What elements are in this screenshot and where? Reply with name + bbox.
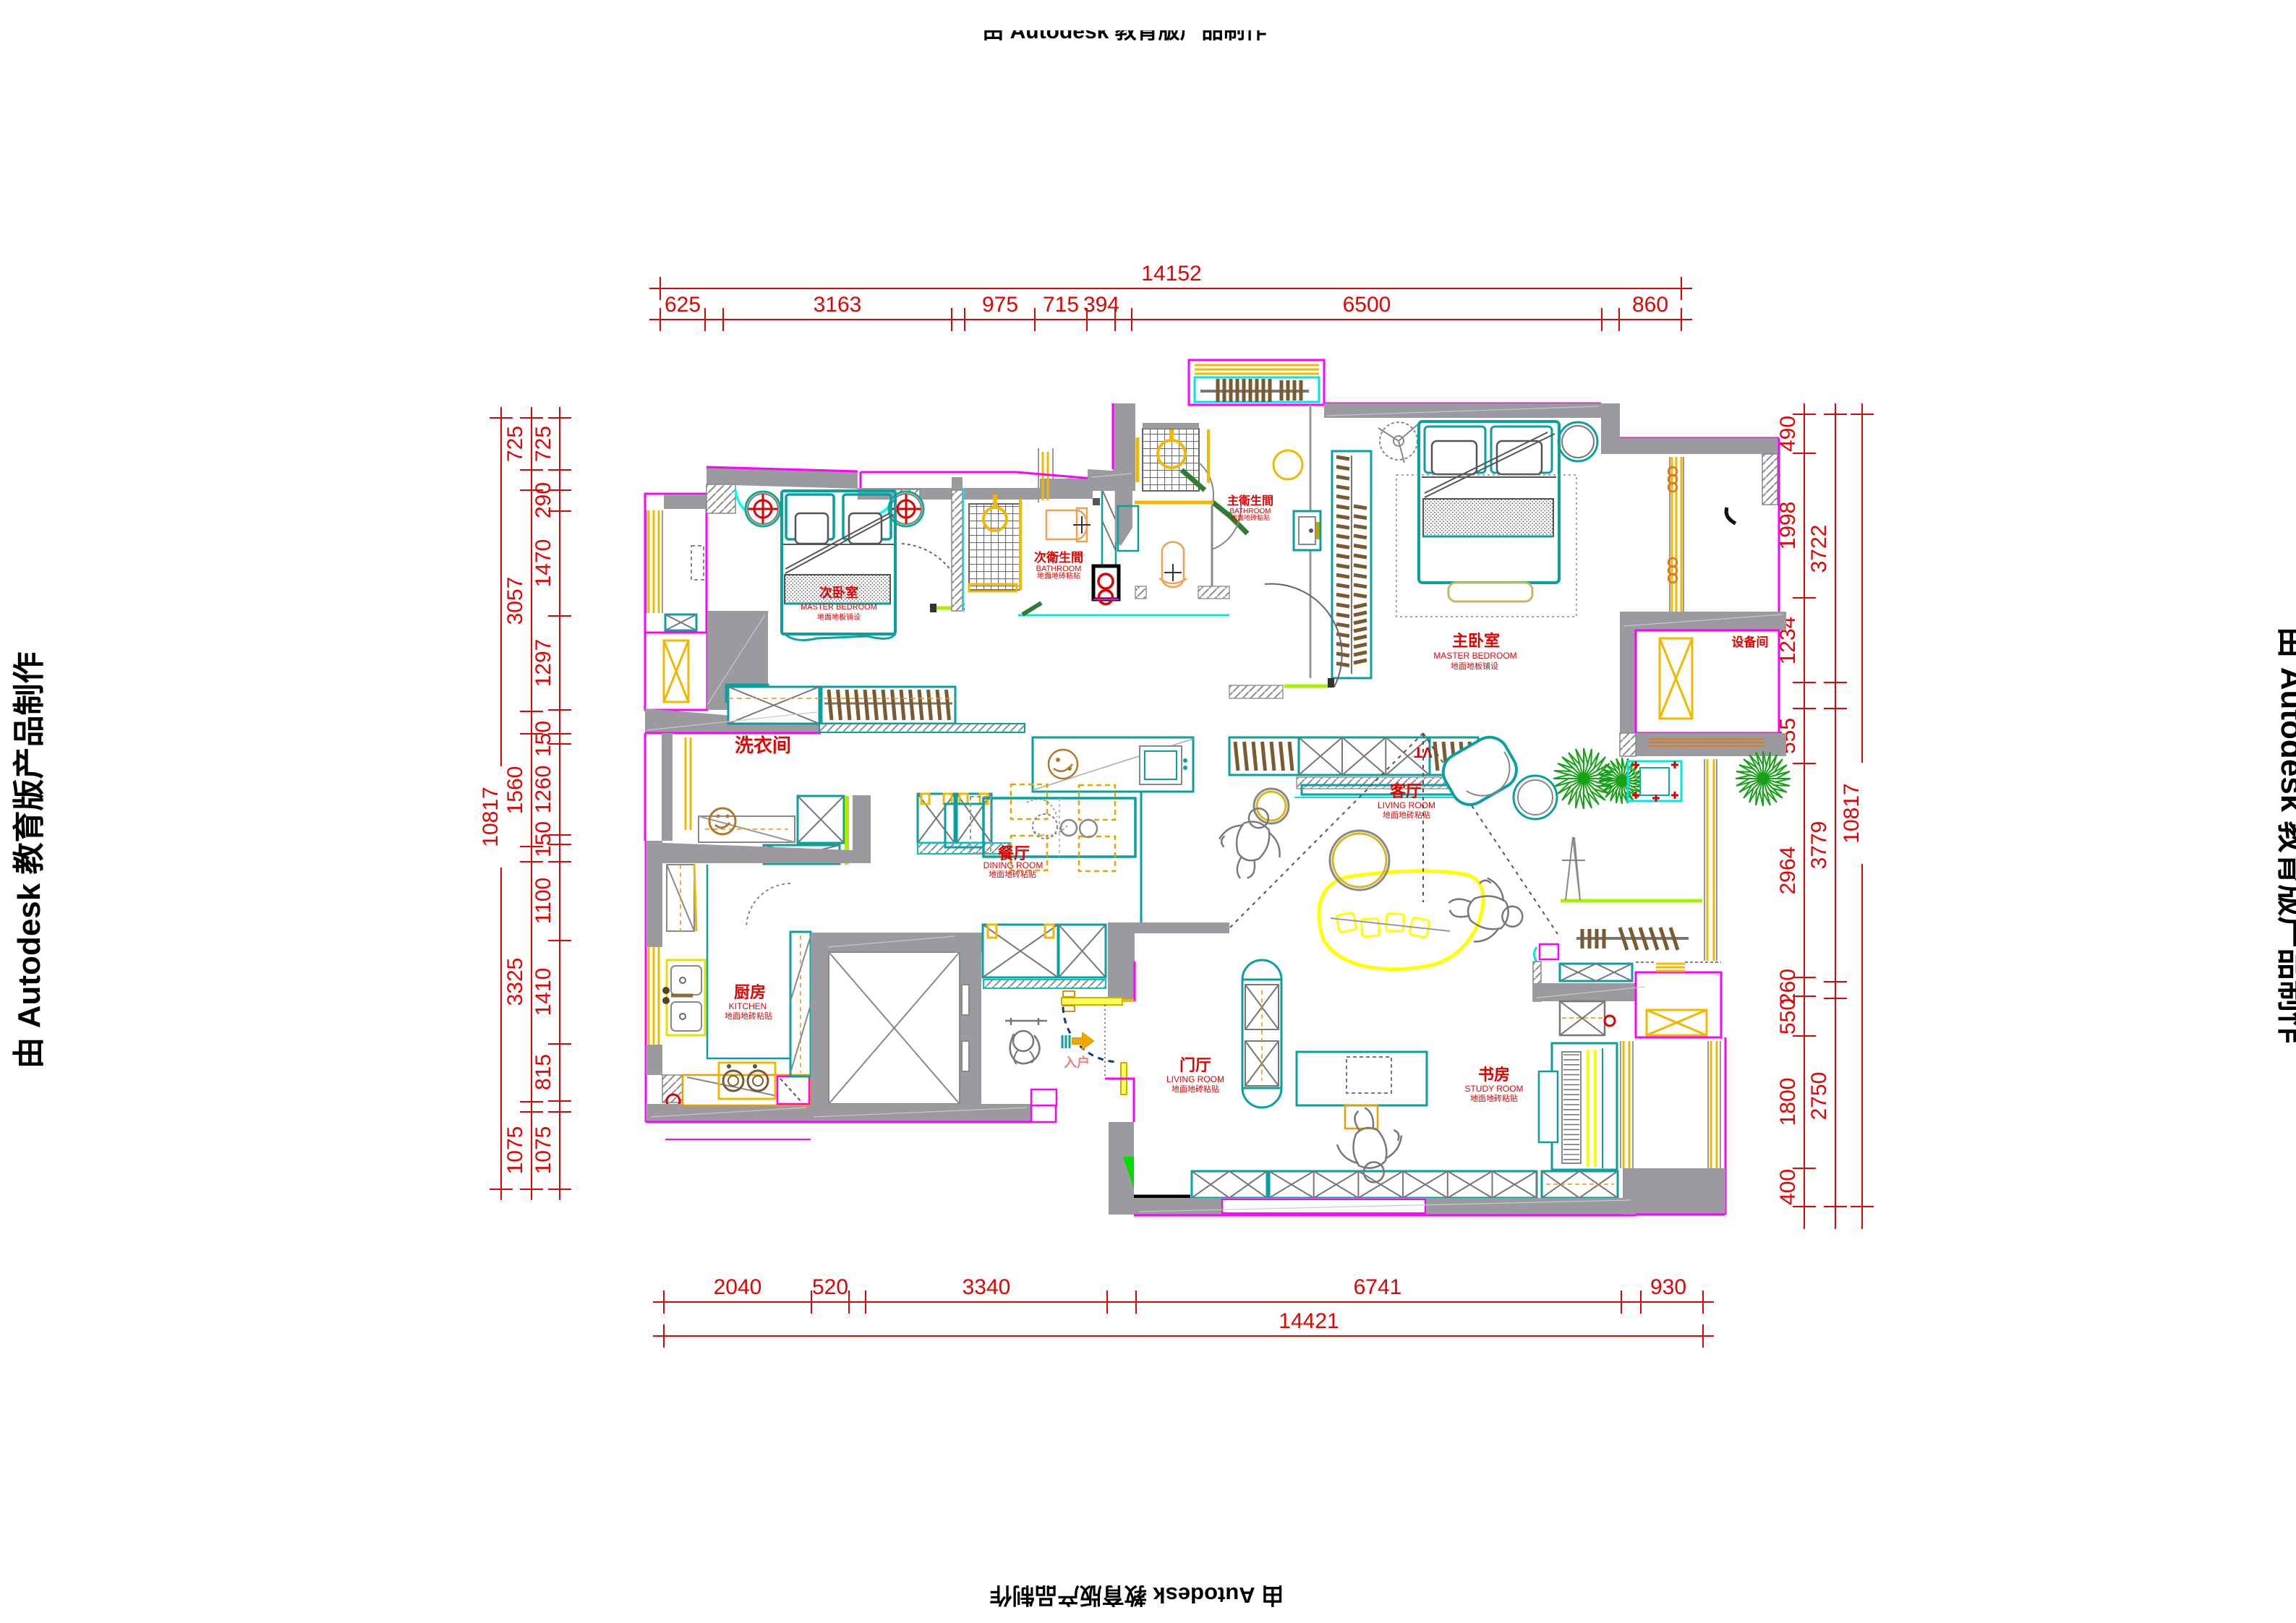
svg-text:厨房: 厨房 [734, 983, 766, 1001]
svg-text:地面地砖粘贴: 地面地砖粘贴 [1037, 571, 1080, 581]
svg-text:3057: 3057 [503, 577, 527, 625]
svg-text:150: 150 [532, 821, 555, 857]
svg-text:815: 815 [532, 1054, 555, 1090]
svg-text:150: 150 [532, 721, 555, 757]
svg-text:地面地板铺设: 地面地板铺设 [1451, 661, 1498, 671]
svg-text:次卧室: 次卧室 [819, 585, 858, 600]
svg-text:由 Autodesk 教育版产品制作: 由 Autodesk 教育版产品制作 [12, 652, 47, 1069]
svg-text:520: 520 [812, 1275, 848, 1299]
svg-text:主卧室: 主卧室 [1452, 632, 1500, 650]
svg-text:290: 290 [532, 482, 555, 518]
svg-text:930: 930 [1650, 1275, 1686, 1299]
svg-text:3325: 3325 [503, 958, 527, 1006]
svg-text:1410: 1410 [532, 968, 555, 1016]
svg-text:3779: 3779 [1807, 821, 1831, 870]
svg-text:地面地砖粘贴: 地面地砖粘贴 [1470, 1093, 1518, 1103]
svg-text:门厅: 门厅 [1179, 1056, 1211, 1074]
svg-text:地面地砖粘贴: 地面地砖粘贴 [1231, 513, 1270, 521]
svg-text:2040: 2040 [714, 1275, 762, 1299]
svg-text:次衛生間: 次衛生間 [1034, 550, 1083, 565]
svg-text:3340: 3340 [963, 1275, 1011, 1299]
svg-text:KITCHEN: KITCHEN [729, 1001, 767, 1011]
svg-text:394: 394 [1083, 293, 1119, 317]
svg-text:书房: 书房 [1478, 1066, 1510, 1084]
svg-text:LIVING ROOM: LIVING ROOM [1166, 1074, 1224, 1084]
svg-text:VT: VT [1414, 744, 1433, 760]
svg-text:由 Autodesk 教育版产品制作: 由 Autodesk 教育版产品制作 [2274, 627, 2296, 1044]
svg-text:地面地砖粘贴: 地面地砖粘贴 [989, 869, 1036, 879]
svg-text:860: 860 [1632, 293, 1668, 317]
svg-text:STUDY ROOM: STUDY ROOM [1464, 1084, 1523, 1094]
svg-text:10817: 10817 [479, 787, 503, 847]
svg-text:625: 625 [665, 293, 701, 317]
svg-text:洗衣间: 洗衣间 [735, 735, 791, 756]
svg-text:725: 725 [532, 426, 555, 462]
svg-text:MASTER BEDROOM: MASTER BEDROOM [801, 603, 877, 612]
svg-text:1075: 1075 [532, 1126, 555, 1175]
svg-text:地面地砖粘贴: 地面地砖粘贴 [725, 1011, 772, 1021]
svg-text:LIVING ROOM: LIVING ROOM [1378, 800, 1435, 810]
svg-text:MASTER BEDROOM: MASTER BEDROOM [1433, 651, 1516, 661]
svg-text:550: 550 [1776, 998, 1800, 1035]
svg-text:14152: 14152 [1141, 262, 1201, 286]
svg-text:入户: 入户 [1064, 1055, 1090, 1070]
svg-text:地面地砖粘贴: 地面地砖粘贴 [1172, 1084, 1219, 1094]
svg-text:400: 400 [1776, 1169, 1800, 1205]
svg-text:1560: 1560 [503, 766, 527, 815]
svg-text:2750: 2750 [1807, 1072, 1831, 1121]
svg-text:6500: 6500 [1343, 293, 1391, 317]
svg-text:地面地砖粘贴: 地面地砖粘贴 [1383, 810, 1430, 820]
svg-text:725: 725 [503, 426, 527, 462]
svg-text:3163: 3163 [814, 293, 862, 317]
svg-text:主衛生間: 主衛生間 [1227, 494, 1273, 508]
svg-text:1800: 1800 [1776, 1078, 1800, 1126]
svg-text:设备间: 设备间 [1732, 635, 1769, 649]
svg-text:3722: 3722 [1807, 525, 1831, 573]
svg-text:1470: 1470 [532, 539, 555, 588]
svg-text:1297: 1297 [532, 639, 555, 688]
svg-text:2964: 2964 [1776, 847, 1800, 895]
svg-text:客厅: 客厅 [1390, 782, 1422, 800]
svg-text:1075: 1075 [503, 1126, 527, 1175]
svg-text:975: 975 [982, 293, 1018, 317]
svg-text:14421: 14421 [1279, 1309, 1339, 1333]
svg-text:地面地板铺设: 地面地板铺设 [817, 612, 861, 622]
svg-text:10817: 10817 [1840, 783, 1864, 843]
svg-text:715: 715 [1043, 293, 1079, 317]
svg-text:6741: 6741 [1354, 1275, 1402, 1299]
svg-text:由 Autodesk 教育版产品制作: 由 Autodesk 教育版产品制作 [990, 1583, 1284, 1608]
svg-text:1100: 1100 [532, 878, 555, 925]
svg-text:1260: 1260 [532, 766, 555, 814]
svg-text:DINING ROOM: DINING ROOM [983, 860, 1044, 870]
